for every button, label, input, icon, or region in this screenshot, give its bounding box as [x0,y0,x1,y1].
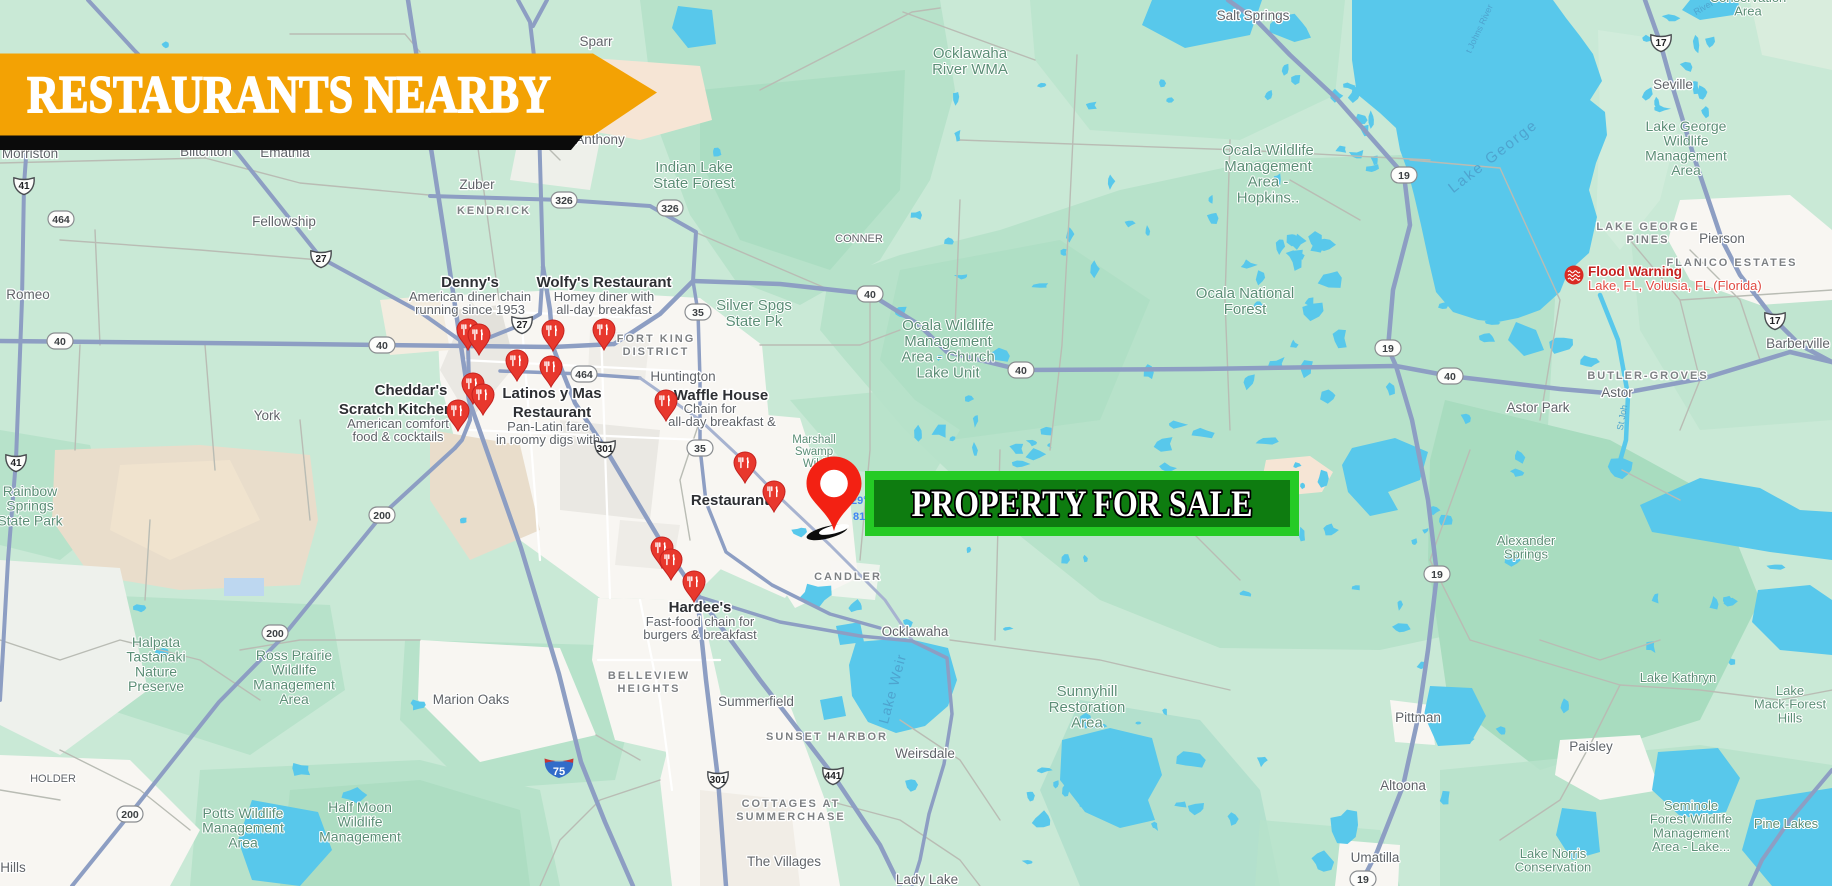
svg-text:Management: Management [253,676,335,692]
svg-text:301: 301 [710,775,727,786]
svg-text:Halpata: Halpata [132,634,180,650]
svg-text:301: 301 [597,444,614,455]
svg-text:Pierson: Pierson [1699,231,1745,246]
svg-text:200: 200 [266,628,284,640]
svg-text:Half Moon: Half Moon [328,799,392,815]
svg-text:Area: Area [279,691,309,707]
svg-text:Huntington: Huntington [650,369,715,384]
svg-text:Indian Lake: Indian Lake [655,159,733,176]
svg-text:Rainbow: Rainbow [3,483,58,499]
svg-text:Zuber: Zuber [459,177,495,192]
svg-text:Lake, FL, Volusia, FL (Florida: Lake, FL, Volusia, FL (Florida) [1588,278,1762,293]
svg-text:Altoona: Altoona [1380,778,1426,793]
svg-text:35: 35 [692,307,704,319]
svg-text:Area -: Area - [1248,174,1289,191]
svg-text:Wildlife: Wildlife [1663,133,1708,149]
svg-text:burgers & breakfast: burgers & breakfast [643,627,757,642]
svg-text:State Forest: State Forest [653,175,736,192]
svg-text:Seville: Seville [1653,77,1693,92]
svg-text:Barberville: Barberville [1766,336,1830,351]
svg-text:Lake George: Lake George [1646,118,1727,134]
svg-text:in roomy digs with: in roomy digs with [496,432,600,447]
svg-text:19: 19 [1382,343,1394,355]
svg-text:State Park: State Park [0,512,64,528]
svg-text:Lady Lake: Lady Lake [896,872,958,886]
svg-text:19: 19 [1357,874,1369,886]
svg-text:27: 27 [315,254,327,265]
svg-text:Pine Lakes: Pine Lakes [1754,816,1819,831]
svg-text:Salt Springs: Salt Springs [1217,8,1290,23]
svg-text:Latinos y Mas: Latinos y Mas [502,385,601,402]
svg-text:Springs: Springs [6,498,53,514]
svg-text:BUTLER-GROVES: BUTLER-GROVES [1587,370,1708,382]
svg-text:464: 464 [52,214,70,226]
svg-text:Nature: Nature [135,663,177,679]
svg-text:Pittman: Pittman [1395,710,1441,725]
svg-text:41: 41 [18,181,30,192]
svg-text:State Pk: State Pk [726,313,783,330]
svg-text:Area: Area [1671,162,1701,178]
svg-text:Management: Management [1645,147,1727,163]
svg-text:Ross Prairie: Ross Prairie [256,647,332,663]
svg-text:Romeo: Romeo [6,287,50,302]
svg-text:Lake Unit: Lake Unit [916,364,980,381]
svg-text:464: 464 [575,369,593,381]
svg-text:19: 19 [1398,170,1410,182]
svg-text:HOLDER: HOLDER [30,773,76,785]
svg-text:Fellowship: Fellowship [252,214,316,229]
svg-text:441: 441 [825,771,842,782]
svg-text:Forest: Forest [1224,301,1267,318]
svg-text:CONNER: CONNER [835,233,883,245]
svg-text:Swamp: Swamp [795,446,833,458]
svg-text:35: 35 [694,443,706,455]
svg-text:DISTRICT: DISTRICT [623,346,690,358]
svg-text:Marshall: Marshall [792,434,835,446]
svg-text:The Villages: The Villages [747,854,821,869]
svg-text:Hopkins..: Hopkins.. [1237,189,1300,206]
svg-text:SUNSET HARBOR: SUNSET HARBOR [766,731,888,743]
svg-text:17: 17 [1655,38,1667,49]
svg-text:BELLEVIEW: BELLEVIEW [608,670,690,682]
svg-text:PINES: PINES [1626,234,1669,246]
svg-text:Area: Area [1734,4,1762,19]
svg-text:Lake Kathryn: Lake Kathryn [1640,670,1717,685]
svg-text:Cheddar's: Cheddar's [375,382,448,399]
svg-text:Tastanaki: Tastanaki [126,649,185,665]
svg-text:Astor Park: Astor Park [1506,400,1569,415]
svg-text:40: 40 [1015,365,1027,377]
svg-text:326: 326 [661,203,679,215]
svg-text:COTTAGES AT: COTTAGES AT [742,798,841,810]
svg-text:FORT KING: FORT KING [617,333,696,345]
svg-text:Area: Area [228,834,258,850]
svg-text:40: 40 [54,336,66,348]
svg-text:Astor: Astor [1601,385,1633,400]
svg-text:Umatilla: Umatilla [1351,850,1400,865]
svg-text:Flood Warning: Flood Warning [1588,264,1682,279]
svg-text:Ocala National: Ocala National [1196,285,1294,302]
svg-text:Management: Management [1224,158,1312,175]
svg-text:200: 200 [373,510,391,522]
svg-text:Restaurant: Restaurant [691,492,769,509]
svg-text:Hills: Hills [0,860,26,875]
svg-text:Ocklawaha: Ocklawaha [933,45,1008,62]
svg-text:York: York [254,408,281,423]
svg-text:326: 326 [555,195,573,207]
svg-text:Ocala Wildlife: Ocala Wildlife [902,317,994,334]
svg-text:75: 75 [553,766,565,778]
svg-text:Area: Area [1071,715,1103,732]
svg-text:Potts Wildlife: Potts Wildlife [203,805,284,821]
svg-text:Springs: Springs [1504,547,1549,562]
svg-text:KENDRICK: KENDRICK [457,205,531,217]
svg-text:Ocala Wildlife: Ocala Wildlife [1222,142,1314,159]
svg-text:Wildlife: Wildlife [271,662,316,678]
svg-text:FLANICO ESTATES: FLANICO ESTATES [1666,257,1797,269]
svg-text:Management: Management [319,828,401,844]
svg-text:40: 40 [864,289,876,301]
svg-text:CANDLER: CANDLER [814,571,882,583]
svg-text:Management: Management [202,820,284,836]
svg-text:Sunnyhill: Sunnyhill [1057,683,1118,700]
svg-text:Silver Spgs: Silver Spgs [716,297,792,314]
svg-text:Restoration: Restoration [1049,699,1126,716]
svg-text:Paisley: Paisley [1569,739,1613,754]
svg-text:41: 41 [10,458,22,469]
svg-text:SUMMERCHASE: SUMMERCHASE [736,811,845,823]
svg-text:Weirsdale: Weirsdale [895,746,955,761]
svg-text:40: 40 [376,340,388,352]
svg-text:17: 17 [1769,316,1781,327]
svg-text:Management: Management [904,333,992,350]
svg-text:Ocklawaha: Ocklawaha [882,624,949,639]
svg-text:Area - Lake...: Area - Lake... [1652,839,1730,854]
svg-text:HEIGHTS: HEIGHTS [618,683,681,695]
svg-text:Summerfield: Summerfield [718,694,794,709]
svg-text:Area - Church: Area - Church [901,349,994,366]
svg-text:Wildlife: Wildlife [337,814,382,830]
svg-text:RESTAURANTS NEARBY: RESTAURANTS NEARBY [27,66,551,124]
svg-text:LAKE GEORGE: LAKE GEORGE [1596,221,1699,233]
svg-text:27: 27 [516,320,528,331]
svg-text:all-day breakfast &: all-day breakfast & [668,414,776,429]
svg-text:Sparr: Sparr [579,34,613,49]
svg-text:Conservation: Conservation [1515,860,1592,875]
svg-text:40: 40 [1444,371,1456,383]
svg-text:food & cocktails: food & cocktails [352,429,444,444]
svg-text:Preserve: Preserve [128,678,184,694]
svg-text:River WMA: River WMA [932,61,1008,78]
svg-text:Hills: Hills [1778,710,1803,725]
svg-text:19: 19 [1431,569,1443,581]
svg-text:PROPERTY FOR SALE: PROPERTY FOR SALE [912,484,1253,525]
svg-text:200: 200 [121,809,139,821]
svg-text:running since 1953: running since 1953 [415,302,525,317]
svg-text:all-day breakfast: all-day breakfast [556,302,652,317]
svg-text:Marion Oaks: Marion Oaks [433,692,510,707]
